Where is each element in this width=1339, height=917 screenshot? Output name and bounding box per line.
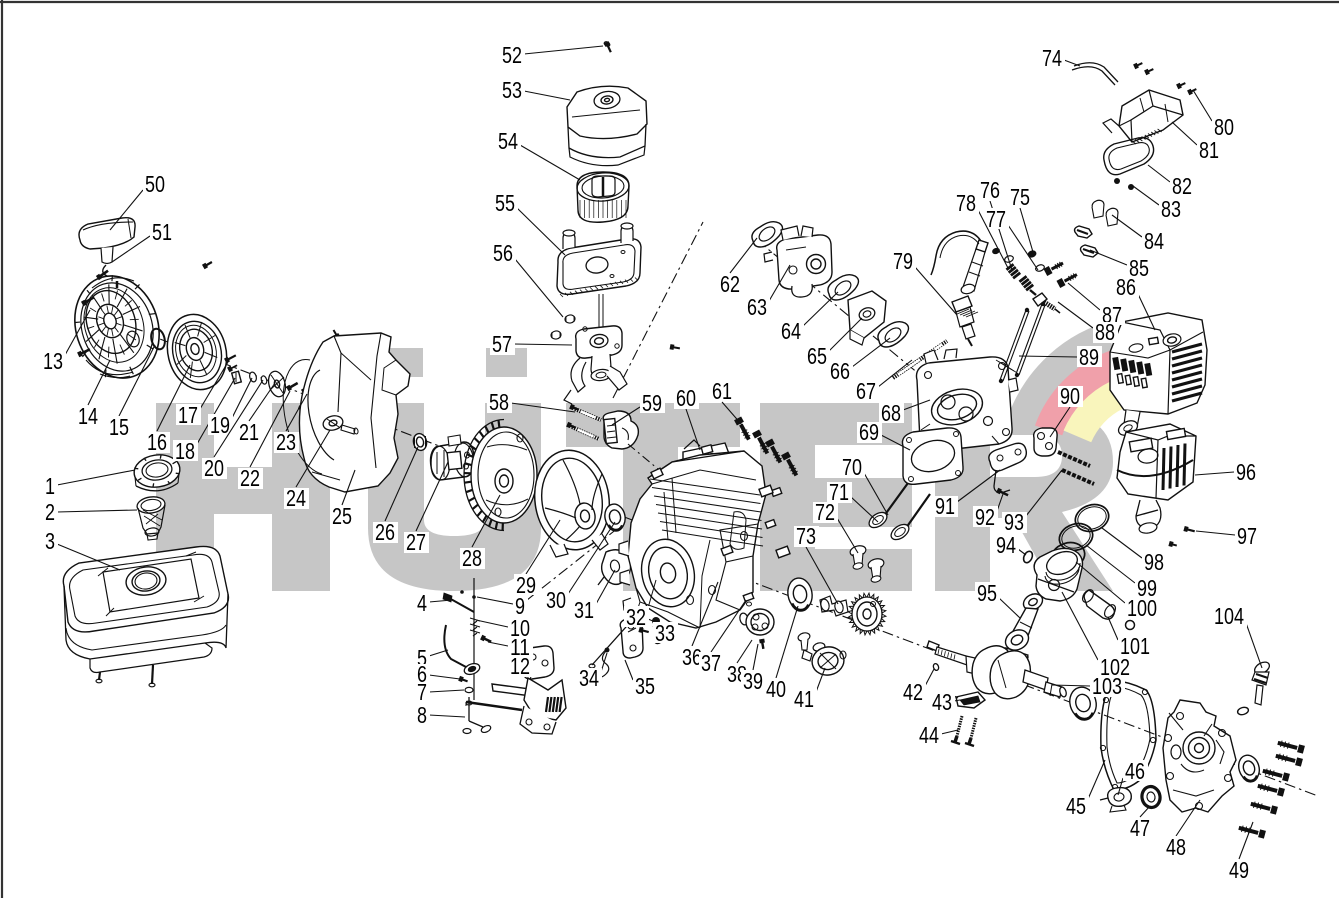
svg-text:34: 34 [579,665,599,691]
svg-text:83: 83 [1161,196,1181,222]
svg-text:89: 89 [1079,344,1099,370]
svg-text:44: 44 [919,722,939,748]
svg-text:4: 4 [417,590,427,616]
svg-text:16: 16 [147,429,167,455]
svg-text:69: 69 [859,419,879,445]
svg-text:91: 91 [935,493,955,519]
svg-text:26: 26 [375,519,395,545]
svg-text:88: 88 [1095,319,1115,345]
svg-text:61: 61 [712,378,732,404]
svg-text:19: 19 [210,412,230,438]
svg-text:21: 21 [239,419,259,445]
svg-text:12: 12 [510,653,530,679]
svg-text:70: 70 [842,454,862,480]
svg-text:68: 68 [881,400,901,426]
svg-text:46: 46 [1125,758,1145,784]
svg-text:86: 86 [1116,274,1136,300]
svg-text:3: 3 [45,528,55,554]
svg-text:58: 58 [489,389,509,415]
svg-text:75: 75 [1010,184,1030,210]
svg-text:73: 73 [796,523,816,549]
svg-text:29: 29 [516,572,536,598]
svg-text:17: 17 [178,402,198,428]
svg-text:100: 100 [1127,595,1157,621]
svg-text:51: 51 [152,219,172,245]
svg-text:28: 28 [462,545,482,571]
svg-text:59: 59 [642,390,662,416]
svg-text:2: 2 [45,499,55,525]
svg-text:8: 8 [417,702,427,728]
svg-text:81: 81 [1199,137,1219,163]
svg-text:98: 98 [1144,549,1164,575]
svg-text:48: 48 [1166,834,1186,860]
svg-text:90: 90 [1060,383,1080,409]
svg-text:18: 18 [175,438,195,464]
svg-text:13: 13 [43,348,63,374]
svg-text:1: 1 [45,473,55,499]
svg-text:57: 57 [492,331,512,357]
svg-text:66: 66 [830,358,850,384]
svg-text:31: 31 [574,597,594,623]
svg-text:60: 60 [676,385,696,411]
svg-text:14: 14 [78,403,98,429]
svg-text:103: 103 [1092,673,1122,699]
svg-text:54: 54 [498,128,518,154]
svg-text:35: 35 [635,673,655,699]
svg-text:65: 65 [807,343,827,369]
svg-text:76: 76 [980,177,1000,203]
svg-text:32: 32 [626,604,646,630]
svg-text:62: 62 [720,271,740,297]
svg-text:94: 94 [996,532,1016,558]
svg-text:97: 97 [1237,523,1257,549]
svg-text:25: 25 [332,503,352,529]
svg-text:56: 56 [493,240,513,266]
svg-text:37: 37 [701,650,721,676]
svg-text:96: 96 [1236,459,1256,485]
svg-text:39: 39 [743,668,763,694]
svg-text:50: 50 [145,171,165,197]
svg-text:45: 45 [1066,793,1086,819]
svg-text:22: 22 [240,465,260,491]
svg-text:104: 104 [1214,603,1244,629]
svg-text:78: 78 [956,190,976,216]
svg-text:24: 24 [286,485,306,511]
svg-text:27: 27 [406,529,426,555]
svg-text:84: 84 [1144,228,1164,254]
svg-text:53: 53 [502,77,522,103]
svg-text:41: 41 [794,686,814,712]
svg-text:92: 92 [975,504,995,530]
svg-text:63: 63 [747,294,767,320]
svg-text:33: 33 [655,620,675,646]
svg-text:23: 23 [276,429,296,455]
svg-text:55: 55 [495,190,515,216]
svg-text:15: 15 [109,414,129,440]
svg-text:49: 49 [1229,857,1249,883]
svg-text:74: 74 [1042,45,1062,71]
svg-text:47: 47 [1130,815,1150,841]
svg-text:79: 79 [893,248,913,274]
svg-text:20: 20 [204,455,224,481]
svg-text:30: 30 [546,587,566,613]
svg-text:42: 42 [903,679,923,705]
svg-text:52: 52 [502,42,522,68]
svg-text:43: 43 [932,689,952,715]
svg-text:40: 40 [766,676,786,702]
svg-text:67: 67 [856,378,876,404]
svg-text:64: 64 [781,318,801,344]
svg-text:95: 95 [977,580,997,606]
svg-text:72: 72 [815,499,835,525]
svg-text:77: 77 [986,206,1006,232]
